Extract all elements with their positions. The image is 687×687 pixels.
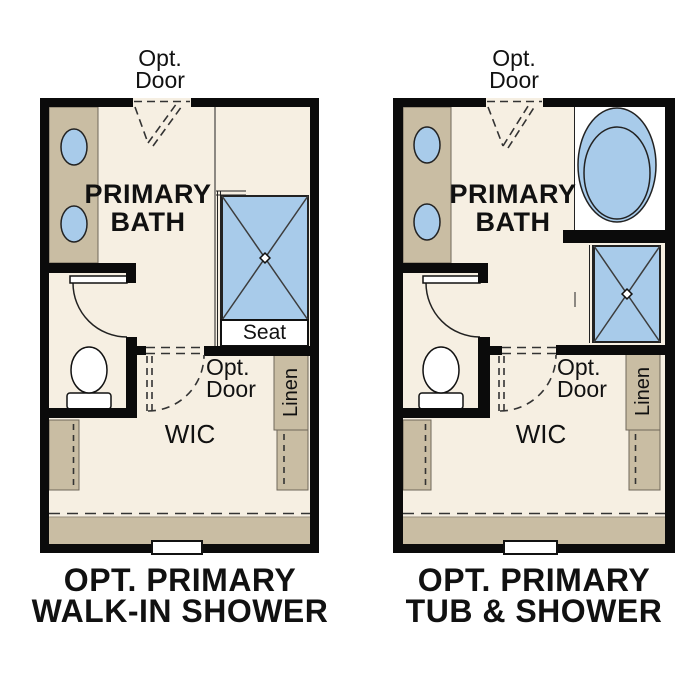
shower-icon [594,246,660,342]
closet-shelf [629,430,660,490]
plan-title-line1: OPT. PRIMARY [18,565,342,596]
plan-title: OPT. PRIMARY TUB & SHOWER [372,565,687,627]
shower-icon [222,196,308,320]
opt-door-label-line2: Door [557,378,607,400]
opt-door-label: Opt. Door [472,47,556,91]
sink-icon [61,129,87,165]
plan-title-line2: TUB & SHOWER [372,596,687,627]
closet-shelf [49,420,79,490]
opt-door-label-line1: Opt. [472,47,556,69]
opt-door-label-line1: Opt. [206,356,256,378]
lower-cabinet-strip [403,517,665,544]
door-panel [70,276,127,283]
room-label-line2: BATH [83,208,213,236]
opt-door-label: Opt. Door [557,356,607,400]
entry-threshold [504,541,557,554]
opt-door-label-line1: Opt. [557,356,607,378]
entry-threshold [152,541,202,554]
opt-door-label-line2: Door [472,69,556,91]
door-panel [423,276,480,283]
linen-label: Linen [274,355,308,430]
top-door-opening [133,98,191,107]
room-label: PRIMARY BATH [83,180,213,236]
floorplan-canvas: Opt. Door PRIMARY BATH Seat Opt. Door WI… [0,0,687,687]
opt-door-label: Opt. Door [206,356,256,400]
tub-icon [578,108,656,222]
lower-cabinet-strip [49,517,310,544]
wic-label: WIC [158,419,222,450]
top-door-opening [486,98,543,107]
opt-door-label: Opt. Door [118,47,202,91]
room-label-line1: PRIMARY [83,180,213,208]
closet-shelf [277,430,308,490]
sink-icon [414,127,440,163]
linen-label: Linen [626,353,660,430]
plan-title: OPT. PRIMARY WALK-IN SHOWER [18,565,342,627]
closet-shelf [403,420,431,490]
room-label-line1: PRIMARY [448,180,578,208]
opt-door-label-line2: Door [118,69,202,91]
seat-label: Seat [221,320,308,346]
plan-title-line1: OPT. PRIMARY [372,565,687,596]
opt-door-label-line1: Opt. [118,47,202,69]
wic-label: WIC [509,419,573,450]
plan-tub-and-shower [393,98,675,554]
plan-title-line2: WALK-IN SHOWER [18,596,342,627]
sink-icon [414,204,440,240]
room-label: PRIMARY BATH [448,180,578,236]
opt-door-label-line2: Door [206,378,256,400]
room-label-line2: BATH [448,208,578,236]
